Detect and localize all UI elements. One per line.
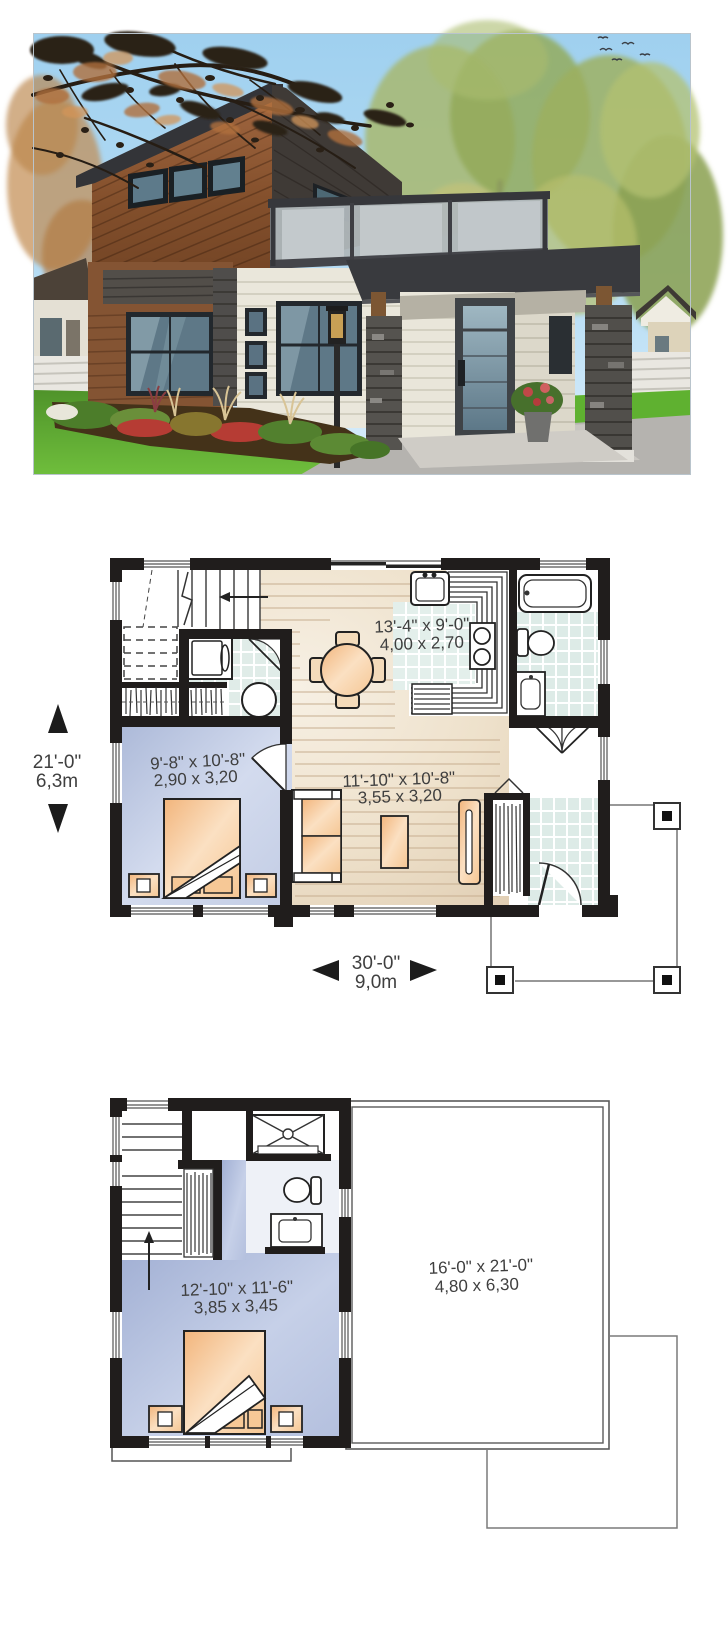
svg-text:21'-0": 21'-0" <box>33 752 81 773</box>
svg-text:30'-0": 30'-0" <box>352 953 400 974</box>
svg-text:3,55 x 3,20: 3,55 x 3,20 <box>357 786 442 808</box>
svg-text:3,85 x 3,45: 3,85 x 3,45 <box>193 1296 278 1318</box>
svg-text:4,00 x 2,70: 4,00 x 2,70 <box>379 633 464 655</box>
svg-text:4,80 x 6,30: 4,80 x 6,30 <box>434 1275 519 1297</box>
svg-text:6,3m: 6,3m <box>36 771 78 792</box>
svg-text:9,0m: 9,0m <box>355 972 397 993</box>
